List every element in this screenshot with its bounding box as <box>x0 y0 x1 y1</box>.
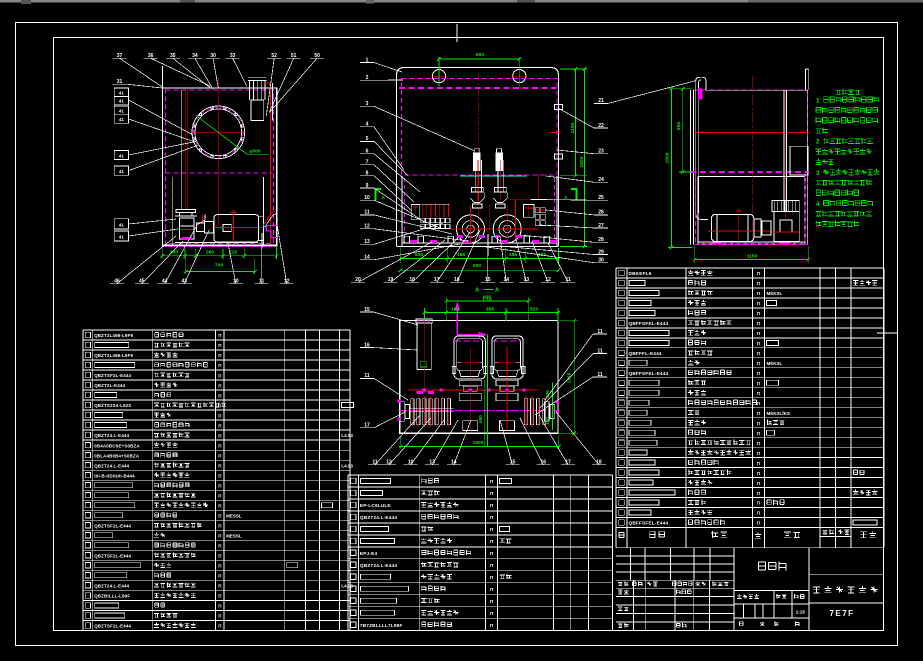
svg-text:41: 41 <box>119 109 125 114</box>
svg-text:QBZT24.L-E444: QBZT24.L-E444 <box>360 563 397 568</box>
svg-text:0BLA4B0B4+S0BZA: 0BLA4B0B4+S0BZA <box>94 453 140 458</box>
svg-text:160: 160 <box>451 307 459 313</box>
svg-text:1600: 1600 <box>665 152 671 163</box>
svg-text:520: 520 <box>530 307 538 313</box>
svg-text:1150: 1150 <box>747 254 758 260</box>
svg-text:Π: Π <box>757 491 760 496</box>
svg-text:41: 41 <box>119 99 125 104</box>
svg-text:1100: 1100 <box>570 122 576 133</box>
svg-text:Π: Π <box>218 463 221 468</box>
svg-text:650: 650 <box>478 415 483 423</box>
svg-text:Π: Π <box>757 421 760 426</box>
svg-text:150: 150 <box>545 417 550 425</box>
svg-text:Π: Π <box>218 624 221 629</box>
svg-text:Π: Π <box>757 451 760 456</box>
svg-text:700: 700 <box>215 263 223 269</box>
svg-text:QBZT24.L-E444: QBZT24.L-E444 <box>94 433 129 438</box>
svg-text:Π: Π <box>218 564 221 569</box>
svg-text:Π: Π <box>218 574 221 579</box>
svg-text:A: A <box>475 288 479 294</box>
svg-text:Π: Π <box>757 461 760 466</box>
svg-text:QBZTSF2L-E444: QBZTSF2L-E444 <box>94 373 131 378</box>
svg-text:185: 185 <box>457 252 465 258</box>
svg-text:41: 41 <box>119 223 125 228</box>
svg-text:0B4A0BChE+S0BZA: 0B4A0BChE+S0BZA <box>94 443 140 448</box>
svg-text:7B7ZBLLLL7L99F: 7B7ZBLLLL7L99F <box>360 623 403 628</box>
svg-text:IIII-B-IIDIIUII-B444: IIII-B-IIDIIUII-B444 <box>94 473 135 478</box>
svg-text:Π: Π <box>218 383 221 388</box>
svg-text:41: 41 <box>119 117 125 122</box>
svg-text:QBZT2L-E444: QBZT2L-E444 <box>94 383 125 388</box>
svg-text:Π: Π <box>757 431 760 436</box>
svg-text:MESSL: MESSL <box>226 533 242 538</box>
svg-text:Π: Π <box>218 393 221 398</box>
svg-text:L4.93: L4.93 <box>341 433 353 438</box>
svg-text:MEKSL: MEKSL <box>767 361 783 366</box>
svg-text:QBZTSF2L-E444: QBZTSF2L-E444 <box>94 553 131 558</box>
svg-text:Π: Π <box>218 433 221 438</box>
svg-text:Π: Π <box>490 599 493 604</box>
svg-text:Π: Π <box>218 423 221 428</box>
svg-text:Π: Π <box>757 411 760 416</box>
svg-text:Π: Π <box>757 471 760 476</box>
svg-text:Π: Π <box>218 554 221 559</box>
svg-text:EPJ-E4: EPJ-E4 <box>360 551 378 556</box>
svg-text:Π: Π <box>757 511 760 516</box>
svg-text:41: 41 <box>119 90 125 95</box>
svg-text:Π: Π <box>757 321 760 326</box>
svg-text:QBFFFL-E444: QBFFFL-E444 <box>629 351 662 356</box>
svg-text:MEKSL: MEKSL <box>767 291 783 296</box>
svg-text:QBZBILLL-L99F: QBZBILLL-L99F <box>94 594 130 599</box>
svg-text:Π: Π <box>218 584 221 589</box>
svg-text:Π: Π <box>218 493 221 498</box>
svg-text:Π: Π <box>218 473 221 478</box>
svg-text:655: 655 <box>676 122 682 130</box>
svg-text:QBZT2L496-L9F9: QBZT2L496-L9F9 <box>94 333 133 338</box>
svg-text:260: 260 <box>206 250 214 256</box>
svg-text:Π: Π <box>218 604 221 609</box>
svg-text:MEKSLfKS: MEKSLfKS <box>767 411 791 416</box>
svg-text:600: 600 <box>483 294 491 300</box>
svg-text:Π: Π <box>757 401 760 406</box>
svg-text:Π: Π <box>218 443 221 448</box>
svg-text:Π: Π <box>757 331 760 336</box>
svg-text:Π: Π <box>490 575 493 580</box>
svg-text:1:15: 1:15 <box>796 610 806 615</box>
svg-text:Π: Π <box>757 501 760 506</box>
svg-text:Π: Π <box>218 363 221 368</box>
svg-text:41: 41 <box>119 169 125 174</box>
svg-text:Π: Π <box>757 291 760 296</box>
svg-text:Π: Π <box>757 351 760 356</box>
svg-text:Π: Π <box>218 544 221 549</box>
svg-text:QBFFSFEL-E444: QBFFSFEL-E444 <box>629 321 669 326</box>
svg-text:Π: Π <box>218 513 221 518</box>
svg-text:365: 365 <box>486 307 494 313</box>
svg-text:530: 530 <box>415 252 423 258</box>
svg-text:Π: Π <box>218 343 221 348</box>
svg-text:Π: Π <box>490 587 493 592</box>
svg-text:Π: Π <box>218 403 221 408</box>
svg-text:L4.93: L4.93 <box>341 463 353 468</box>
svg-text:QBZT2L496-L9F9: QBZT2L496-L9F9 <box>94 353 133 358</box>
svg-text:41: 41 <box>119 153 125 158</box>
svg-text:1600: 1600 <box>473 440 484 446</box>
svg-text:600: 600 <box>476 52 484 58</box>
svg-text:Π: Π <box>490 527 493 532</box>
svg-text:QBZT24.L-E444: QBZT24.L-E444 <box>360 515 397 520</box>
svg-text:Π: Π <box>490 491 493 496</box>
svg-text:A: A <box>495 288 499 294</box>
svg-text:Π: Π <box>757 361 760 366</box>
svg-text:EP-LC9LULE: EP-LC9LULE <box>360 503 391 508</box>
svg-text:Π: Π <box>218 594 221 599</box>
svg-text:Π: Π <box>490 515 493 520</box>
svg-text:φ500: φ500 <box>250 148 261 153</box>
svg-text:Π: Π <box>490 563 493 568</box>
svg-text:600: 600 <box>473 263 481 269</box>
svg-text:Π: Π <box>490 623 493 628</box>
svg-text:41: 41 <box>119 235 125 240</box>
svg-text:Π: Π <box>218 413 221 418</box>
svg-text:QBZT24.L-E444: QBZT24.L-E444 <box>94 463 129 468</box>
svg-text:Π: Π <box>218 453 221 458</box>
svg-text:QBZTS2S4-L92S: QBZTS2S4-L92S <box>94 403 131 408</box>
svg-text:Π: Π <box>218 524 221 529</box>
svg-text:Π: Π <box>490 503 493 508</box>
svg-text:Π: Π <box>218 503 221 508</box>
svg-text:Π: Π <box>757 481 760 486</box>
svg-text:1600: 1600 <box>579 156 585 167</box>
svg-text:Π: Π <box>218 333 221 338</box>
svg-text:7E7F: 7E7F <box>829 609 854 618</box>
svg-text:185: 185 <box>509 252 517 258</box>
svg-text:QBFFSFEL-E444: QBFFSFEL-E444 <box>629 521 669 526</box>
svg-text:Π: Π <box>218 353 221 358</box>
svg-text:QBZTSF2L-E444: QBZTSF2L-E444 <box>94 624 131 629</box>
svg-text:Π: Π <box>757 301 760 306</box>
svg-text:Π: Π <box>218 483 221 488</box>
svg-text:Π: Π <box>757 281 760 286</box>
svg-text:Π: Π <box>490 611 493 616</box>
svg-text:Π: Π <box>490 539 493 544</box>
svg-text:Π: Π <box>757 441 760 446</box>
svg-text:Π: Π <box>218 373 221 378</box>
svg-text:Π: Π <box>757 341 760 346</box>
svg-text:QBZTSF2L-E444: QBZTSF2L-E444 <box>94 523 131 528</box>
svg-text:DBKEFL6: DBKEFL6 <box>629 271 652 276</box>
svg-text:QBZT24.L-E444: QBZT24.L-E444 <box>94 583 129 588</box>
svg-text:Π: Π <box>757 271 760 276</box>
svg-text:Π: Π <box>490 479 493 484</box>
svg-text:Π: Π <box>757 311 760 316</box>
svg-text:Π: Π <box>757 391 760 396</box>
svg-text:Π: Π <box>757 371 760 376</box>
svg-text:QBFFSFEL-E444: QBFFSFEL-E444 <box>629 371 669 376</box>
svg-text:Π: Π <box>757 521 760 526</box>
svg-text:Π: Π <box>757 381 760 386</box>
svg-text:MESSL: MESSL <box>226 513 242 518</box>
svg-text:Π: Π <box>218 534 221 539</box>
svg-text:Π: Π <box>490 551 493 556</box>
svg-text:Π: Π <box>218 614 221 619</box>
